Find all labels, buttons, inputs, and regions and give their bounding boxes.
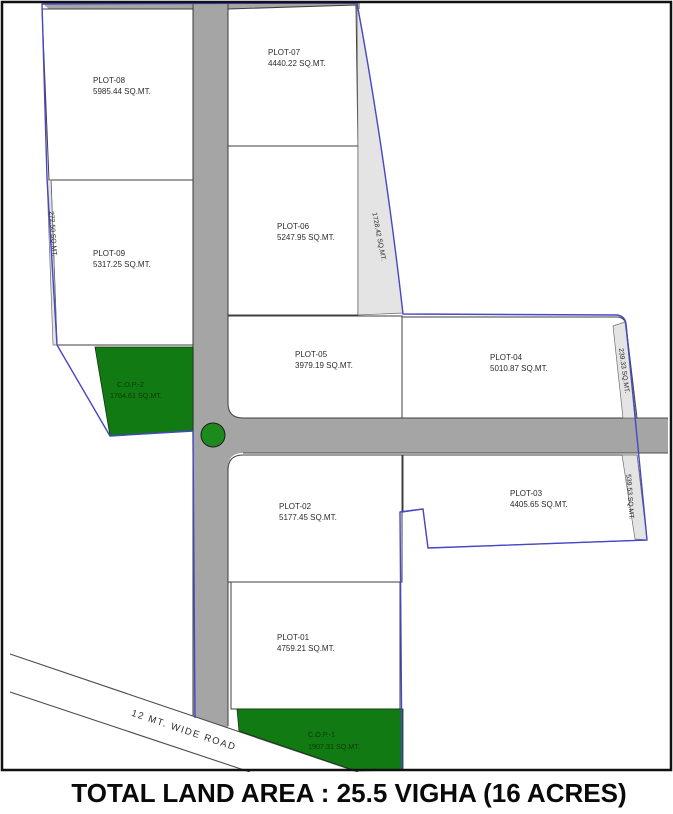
plan-area: PLOT-08 5985.44 SQ.MT. PLOT-09 5317.25 S… xyxy=(0,0,673,772)
plot-05-area: 3979.19 SQ.MT. xyxy=(295,361,353,370)
junction-marker-dot xyxy=(201,423,225,447)
site-plan-svg: PLOT-08 5985.44 SQ.MT. PLOT-09 5317.25 S… xyxy=(0,0,673,772)
plot-02-area: 5177.45 SQ.MT. xyxy=(279,513,337,522)
plot-04-area: 5010.87 SQ.MT. xyxy=(490,364,548,373)
site-plan-page: PLOT-08 5985.44 SQ.MT. PLOT-09 5317.25 S… xyxy=(0,0,673,814)
cop-2-label: C.O.P.-2 xyxy=(117,380,144,389)
plot-07-area: 4440.22 SQ.MT. xyxy=(268,59,326,68)
plot-07-shape xyxy=(228,5,358,146)
plot-09-label: PLOT-09 xyxy=(93,249,126,258)
cop-1-label: C.O.P.-1 xyxy=(308,730,335,739)
horizontal-road xyxy=(213,418,668,453)
cop-1-shape xyxy=(237,709,403,771)
cop-1-area: 1907.31 SQ.MT. xyxy=(308,742,360,751)
plot-01-label: PLOT-01 xyxy=(277,633,310,642)
plot-08-area: 5985.44 SQ.MT. xyxy=(93,87,151,96)
plot-06-area: 5247.95 SQ.MT. xyxy=(277,233,335,242)
plot-03-area: 4405.65 SQ.MT. xyxy=(510,500,568,509)
plot-09-area: 5317.25 SQ.MT. xyxy=(93,260,151,269)
plot-07-label: PLOT-07 xyxy=(268,48,301,57)
plot-03-label: PLOT-03 xyxy=(510,489,543,498)
plot-05-label: PLOT-05 xyxy=(295,350,328,359)
vertical-road xyxy=(193,3,228,728)
cop-2-area: 1764.61 SQ.MT. xyxy=(110,391,162,400)
plot-08-label: PLOT-08 xyxy=(93,76,126,85)
plot-01-area: 4759.21 SQ.MT. xyxy=(277,644,335,653)
plot-06-label: PLOT-06 xyxy=(277,222,310,231)
plot-04-label: PLOT-04 xyxy=(490,353,523,362)
plot-02-label: PLOT-02 xyxy=(279,502,312,511)
total-land-area-title: TOTAL LAND AREA : 25.5 VIGHA (16 ACRES) xyxy=(71,778,626,809)
title-bar: TOTAL LAND AREA : 25.5 VIGHA (16 ACRES) xyxy=(0,772,673,814)
center-margin-sliver xyxy=(357,5,403,315)
